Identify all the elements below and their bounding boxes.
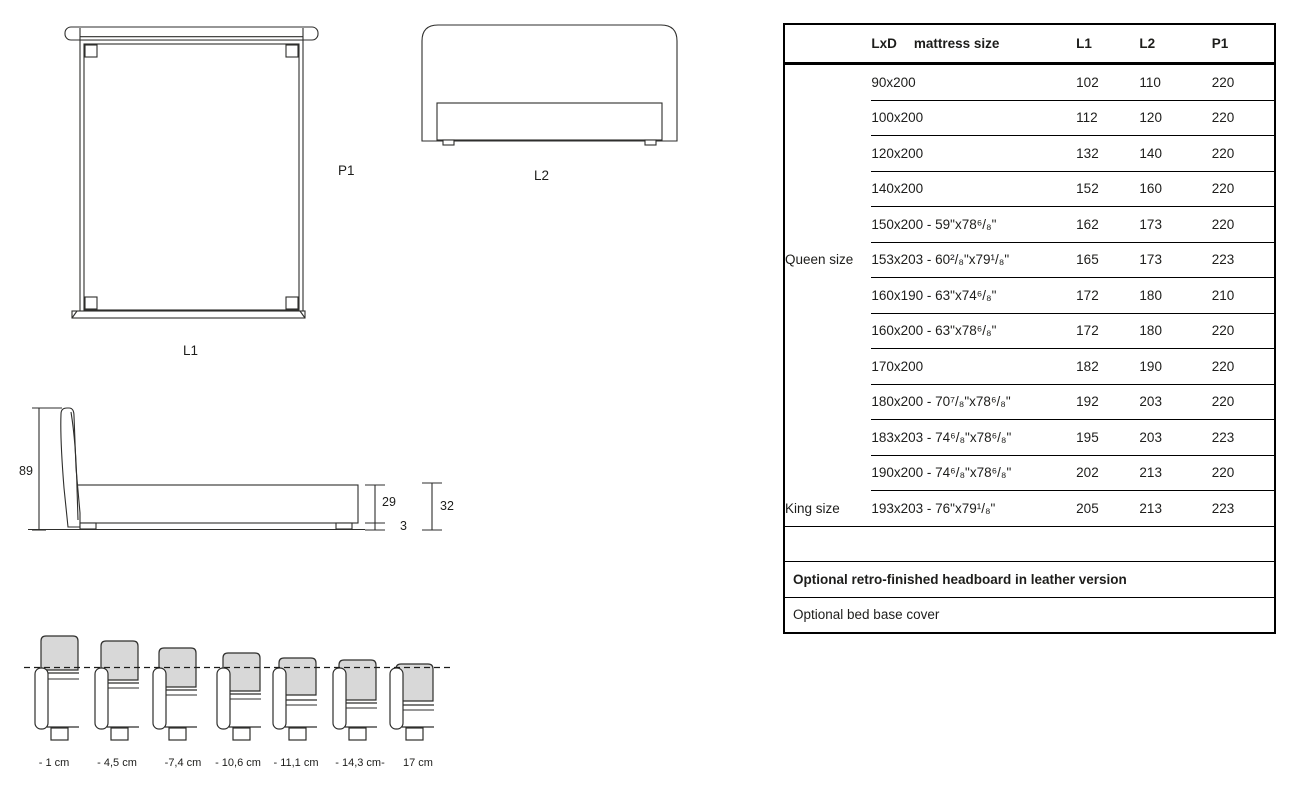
cell-group: King size [784,491,871,527]
cell-group: Queen size [784,242,871,278]
cell-l2: 213 [1139,455,1211,491]
cell-l1: 152 [1076,171,1139,207]
foot-right [645,140,656,145]
foot-left-side [80,523,96,529]
foot [233,728,250,740]
mattress-reference-dashed-line [24,666,454,669]
table-row: 160x190 - 63"x74⁶/₈"172180210 [784,278,1275,314]
side-rail [35,668,48,729]
bed-base-side [76,485,358,523]
cell-p1: 223 [1212,491,1275,527]
cell-size: 160x200 - 63"x78⁶/₈" [871,313,1076,349]
cell-p1: 210 [1212,278,1275,314]
option-note-row: Optional retro-finished headboard in lea… [784,562,1275,598]
foot-left [443,140,454,145]
cell-size: 120x200 [871,136,1076,172]
empty-row [784,526,1275,562]
side-rail [333,668,346,729]
cell-group [784,278,871,314]
header-lxd: LxD [871,36,897,51]
header-l1: L1 [1076,24,1139,64]
total-height-dim: 89 [19,464,33,478]
base-height-dim: 29 [382,495,396,509]
cell-group [784,313,871,349]
table-row: 180x200 - 70⁷/₈"x78⁶/₈"192203220 [784,384,1275,420]
profile-offset-label: - 4,5 cm [97,757,137,769]
cell-group [784,171,871,207]
cell-p1: 220 [1212,207,1275,243]
foot-top-right [286,45,298,57]
empty-cell [784,526,1275,562]
side-rail [153,668,166,729]
cell-l1: 195 [1076,420,1139,456]
cell-l2: 190 [1139,349,1211,385]
option-note-text: Optional retro-finished headboard in lea… [784,562,1275,598]
top-view-drawing [55,20,325,325]
table-row: 120x200132140220 [784,136,1275,172]
cell-l1: 202 [1076,455,1139,491]
headboard-profile-diagram [31,630,87,756]
header-p1: P1 [1212,24,1275,64]
cell-size: 170x200 [871,349,1076,385]
cell-p1: 223 [1212,242,1275,278]
size-table-body: 90x200102110220100x200112120220120x20013… [784,64,1275,634]
headboard-profile-diagram [269,630,325,756]
header-mattress-size: LxDmattress size [871,24,1076,64]
foot [349,728,366,740]
header-mattress-size-label: mattress size [914,36,1000,51]
cell-l2: 140 [1139,136,1211,172]
cell-size: 150x200 - 59"x78⁶/₈" [871,207,1076,243]
table-row: 183x203 - 74⁶/₈"x78⁶/₈"195203223 [784,420,1275,456]
header-group [784,24,871,64]
cell-l2: 180 [1139,313,1211,349]
cell-group [784,420,871,456]
foot-top-left [85,45,97,57]
foot-bottom-right [286,297,298,309]
cell-group [784,64,871,101]
cell-l1: 162 [1076,207,1139,243]
table-row: Queen size153x203 - 60²/₈"x79¹/₈"1651732… [784,242,1275,278]
mattress-size-table: LxDmattress size L1 L2 P1 90x20010211022… [783,23,1276,634]
cell-group [784,455,871,491]
table-row: 160x200 - 63"x78⁶/₈"172180220 [784,313,1275,349]
foot [111,728,128,740]
cell-p1: 223 [1212,420,1275,456]
profile-offset-label: 17 cm [403,757,433,769]
cell-l2: 173 [1139,207,1211,243]
cell-l2: 110 [1139,64,1211,101]
cell-group [784,384,871,420]
foot-right-side [336,523,352,529]
base-with-foot-dim: 32 [440,499,454,513]
headboard-bar [65,27,318,40]
cell-size: 140x200 [871,171,1076,207]
cell-l1: 192 [1076,384,1139,420]
cell-group [784,349,871,385]
cell-size: 90x200 [871,64,1076,101]
cell-l2: 173 [1139,242,1211,278]
cell-l2: 203 [1139,420,1211,456]
cell-p1: 220 [1212,100,1275,136]
table-row: King size193x203 - 76"x79¹/₈"205213223 [784,491,1275,527]
table-row: 190x200 - 74⁶/₈"x78⁶/₈"202213220 [784,455,1275,491]
cell-size: 100x200 [871,100,1076,136]
headboard-profile-diagram [386,630,442,756]
table-row: 170x200182190220 [784,349,1275,385]
bed-spec-sheet: L1 P1 L2 89 29 3 32 - 1 cm- 4,5 cm-7,4 c… [0,0,1290,806]
cell-size: 193x203 - 76"x79¹/₈" [871,491,1076,527]
cell-group [784,100,871,136]
side-rail [390,668,403,729]
cell-size: 180x200 - 70⁷/₈"x78⁶/₈" [871,384,1076,420]
cell-l1: 172 [1076,278,1139,314]
cell-size: 183x203 - 74⁶/₈"x78⁶/₈" [871,420,1076,456]
footboard-rail [72,311,305,318]
cell-size: 190x200 - 74⁶/₈"x78⁶/₈" [871,455,1076,491]
option-note-text: Optional bed base cover [784,597,1275,633]
bed-frame-inner [84,44,299,310]
headboard-profile-diagram [149,630,205,756]
cell-p1: 220 [1212,384,1275,420]
cell-size: 160x190 - 63"x74⁶/₈" [871,278,1076,314]
front-view-drawing [415,18,690,150]
cell-p1: 220 [1212,171,1275,207]
cell-p1: 220 [1212,313,1275,349]
bed-frame-outer [80,40,303,314]
foot-bottom-left [85,297,97,309]
table-row: 100x200112120220 [784,100,1275,136]
cell-l1: 132 [1076,136,1139,172]
table-row: 150x200 - 59"x78⁶/₈"162173220 [784,207,1275,243]
cell-p1: 220 [1212,455,1275,491]
side-rail [273,668,286,729]
cell-l1: 172 [1076,313,1139,349]
headboard-profile-diagram [91,630,147,756]
cell-l2: 213 [1139,491,1211,527]
table-header-row: LxDmattress size L1 L2 P1 [784,24,1275,64]
cell-p1: 220 [1212,136,1275,172]
top-view-depth-label: P1 [338,163,355,178]
cell-l2: 120 [1139,100,1211,136]
cell-p1: 220 [1212,349,1275,385]
cell-group [784,136,871,172]
cell-p1: 220 [1212,64,1275,101]
side-rail [217,668,230,729]
profile-offset-label: - 1 cm [39,757,70,769]
profile-offset-label: - 11,1 cm [273,757,318,769]
cell-l1: 165 [1076,242,1139,278]
headboard-block [41,636,78,670]
top-view-width-label: L1 [183,343,198,358]
cell-l1: 102 [1076,64,1139,101]
cell-group [784,207,871,243]
foot-height-dim: 3 [400,519,407,533]
bed-base-front [437,103,662,140]
cell-size: 153x203 - 60²/₈"x79¹/₈" [871,242,1076,278]
front-view-width-label: L2 [534,168,549,183]
foot [406,728,423,740]
headboard-profile-diagram [213,630,269,756]
profile-offset-label: - 10,6 cm [215,757,261,769]
header-l2: L2 [1139,24,1211,64]
table-row: 140x200152160220 [784,171,1275,207]
cell-l1: 205 [1076,491,1139,527]
cell-l2: 180 [1139,278,1211,314]
headboard-profile-diagram [329,630,385,756]
cell-l1: 182 [1076,349,1139,385]
foot [51,728,68,740]
cell-l2: 203 [1139,384,1211,420]
foot [289,728,306,740]
side-view-drawing [10,398,465,538]
option-note-row: Optional bed base cover [784,597,1275,633]
profile-offset-label: - 14,3 cm- [335,757,385,769]
side-rail [95,668,108,729]
profile-offset-label: -7,4 cm [165,757,202,769]
foot [169,728,186,740]
table-row: 90x200102110220 [784,64,1275,101]
cell-l1: 112 [1076,100,1139,136]
cell-l2: 160 [1139,171,1211,207]
